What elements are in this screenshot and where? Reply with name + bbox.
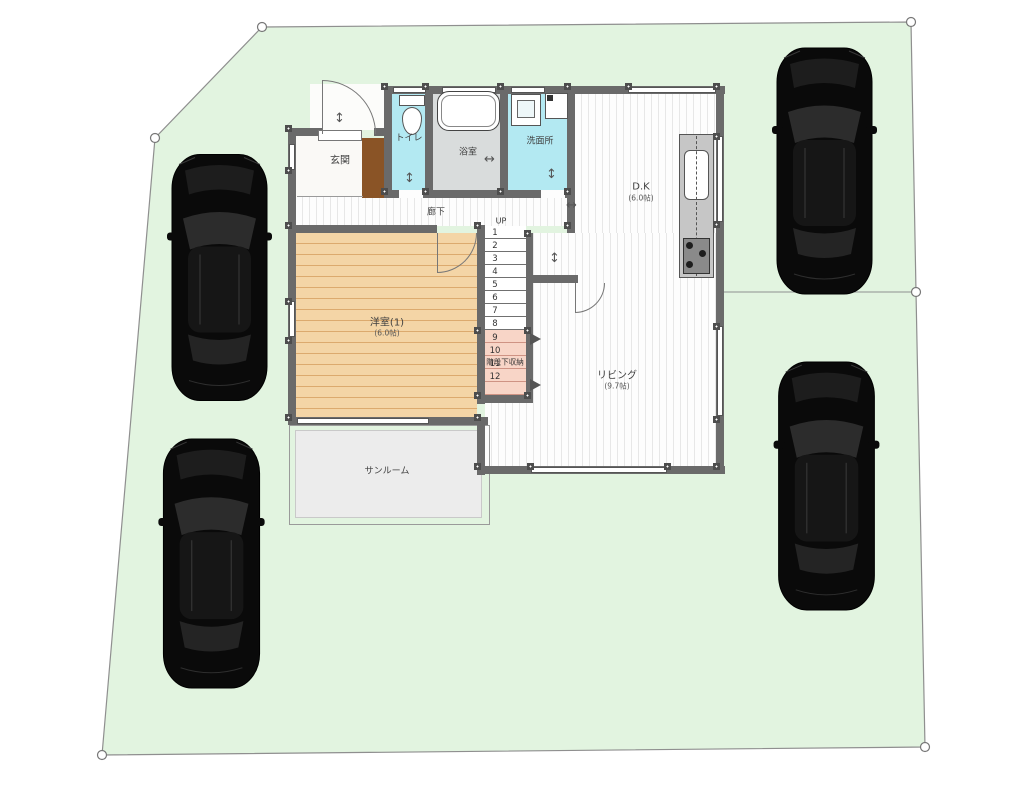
stair-tread-number: 7 [488, 306, 502, 316]
wall-junction-marker [497, 83, 504, 90]
wall-junction-marker [285, 337, 292, 344]
window-left-western [289, 301, 295, 337]
wall-junction-marker [664, 463, 671, 470]
dk-label: D.K [632, 182, 649, 193]
stair-tread-number: 2 [488, 241, 502, 251]
wall-junction-marker [474, 222, 481, 229]
bath-label: 浴室 [459, 145, 477, 158]
western-room-label: 洋室(1) [370, 314, 404, 329]
hallway-label: 廊下 [427, 205, 445, 218]
sunroom-label: サンルーム [365, 464, 410, 477]
washroom-door-arrow: ↕ [546, 168, 557, 181]
wall-junction-marker [474, 392, 481, 399]
stair-tread-number: 4 [488, 267, 502, 277]
wall-junction-marker [474, 463, 481, 470]
car-top-left [167, 150, 272, 405]
stair-storage-label: 階段下収納 [486, 357, 524, 368]
living-size: (9.7帖) [604, 381, 629, 392]
genkan-passage-arrow: ↕ [334, 112, 345, 125]
wall-junction-marker [713, 416, 720, 423]
wall-stairs-right [526, 233, 533, 396]
wall-junction-marker [524, 392, 531, 399]
wall-junction-marker [713, 463, 720, 470]
wall-junction-marker [285, 125, 292, 132]
toilet-label: トイレ [395, 131, 422, 144]
wall-junction-marker [474, 327, 481, 334]
wall-junction-marker [713, 323, 720, 330]
bathtub-inner [441, 95, 496, 127]
stair-tread-number: 10 [488, 346, 502, 356]
wall-junction-marker [285, 167, 292, 174]
wall-junction-marker [381, 188, 388, 195]
wall-junction-marker [524, 327, 531, 334]
wall-junction-marker [524, 230, 531, 237]
wall-dk-living-stub [529, 275, 578, 283]
window-living-bottom [531, 467, 667, 473]
wall-bath-washroom [500, 86, 508, 198]
wall-junction-marker [381, 83, 388, 90]
stair-tread-number: 12 [488, 372, 502, 382]
wall-junction-marker [285, 298, 292, 305]
storage-door-mark-upper [530, 333, 541, 345]
window-western-bottom [297, 418, 429, 424]
wall-junction-marker [713, 133, 720, 140]
washbasin-bowl [517, 100, 535, 118]
wall-junction-marker [474, 414, 481, 421]
car-right-middle [772, 360, 881, 612]
bath-door-arrow: ↔ [484, 153, 495, 166]
wall-junction-marker [422, 188, 429, 195]
wall-junction-marker [285, 414, 292, 421]
wall-junction-marker [422, 83, 429, 90]
washroom-door-gap [541, 190, 565, 198]
car-top-right [768, 46, 881, 296]
stair-tread-number: 6 [488, 293, 502, 303]
wall-stairs-left [477, 225, 485, 404]
window-right-kitchen [717, 136, 723, 222]
stove-burner-1 [686, 242, 693, 249]
wall-genkan-toilet [384, 86, 392, 198]
wall-junction-marker [713, 221, 720, 228]
toilet-door-arrow: ↕ [404, 172, 415, 185]
window-top-washroom [511, 87, 545, 93]
stove-burner-3 [686, 261, 693, 268]
car-bottom-left [158, 437, 265, 690]
western-room-size: (6.0帖) [374, 328, 399, 339]
genkan-label: 玄関 [330, 152, 350, 167]
window-right-living [717, 326, 723, 416]
wall-junction-marker [497, 188, 504, 195]
stair-tread-number: 8 [488, 319, 502, 329]
wall-junction-marker [564, 188, 571, 195]
wall-hall-western [288, 225, 437, 233]
floorplan-canvas: ↕ ↕ ↔ ↕ ↔ ↕ 玄関 トイレ 浴室 洗面所 D.K (6.0帖) 廊下 … [0, 0, 1024, 793]
wall-junction-marker [564, 222, 571, 229]
stair-tread-number: 9 [488, 333, 502, 343]
toilet-door-gap [399, 190, 423, 198]
wall-junction-marker [713, 83, 720, 90]
wall-junction-marker [527, 463, 534, 470]
wall-junction-marker [564, 83, 571, 90]
living-passage-arrow: ↕ [549, 252, 560, 265]
genkan-step-line [297, 196, 363, 197]
wall-toilet-bath [425, 86, 433, 198]
stove-burner-2 [699, 250, 706, 257]
stair-tread-number: 1 [488, 228, 502, 238]
hall-dk-arrow: ↔ [566, 199, 577, 212]
wall-junction-marker [625, 83, 632, 90]
stairs-up-label: UP [496, 217, 507, 226]
washroom-label: 洗面所 [526, 134, 553, 147]
dk-size: (6.0帖) [628, 193, 653, 204]
wall-junction-marker [285, 222, 292, 229]
storage-door-mark-lower [530, 379, 541, 391]
stair-tread-number: 3 [488, 254, 502, 264]
toilet-tank [399, 95, 425, 106]
living-label: リビング [597, 367, 637, 382]
washing-machine-mark [547, 95, 553, 101]
stair-tread-number: 5 [488, 280, 502, 290]
genkan-floor [296, 136, 362, 198]
window-top-dk [628, 87, 716, 93]
